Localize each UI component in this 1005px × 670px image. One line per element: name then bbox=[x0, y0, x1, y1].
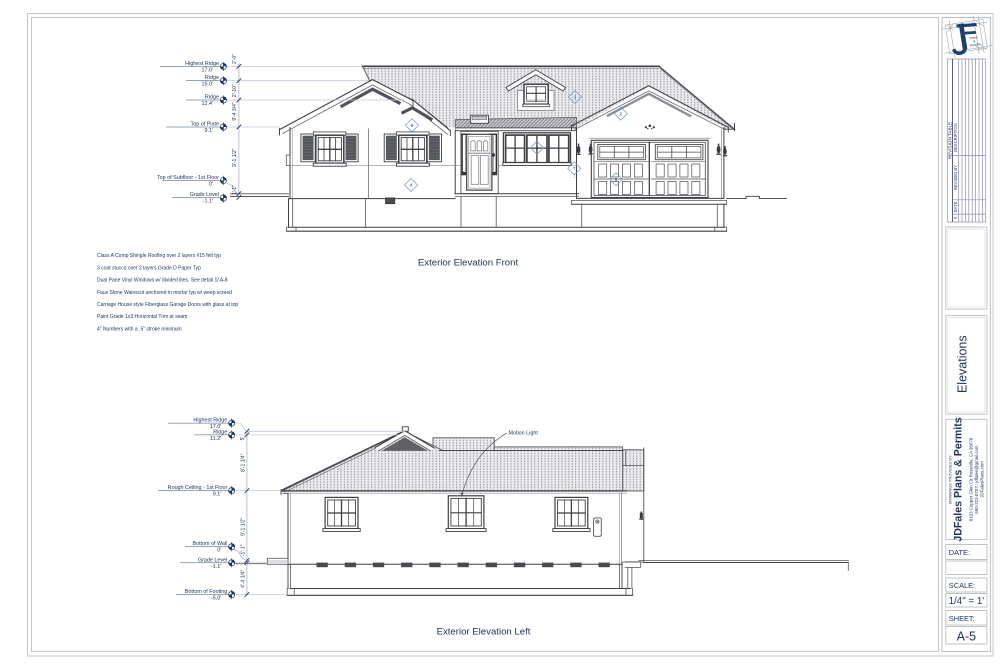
svg-text:Ridge: Ridge bbox=[213, 429, 227, 435]
svg-text:5': 5' bbox=[240, 437, 246, 441]
svg-text:9.1': 9.1' bbox=[204, 128, 213, 134]
svg-text:DATE:: DATE: bbox=[949, 548, 970, 557]
svg-text:Paint Grade 1x3 Horizontal Tri: Paint Grade 1x3 Horizontal Trim at seam. bbox=[97, 314, 189, 320]
svg-text:6: 6 bbox=[411, 123, 414, 128]
svg-text:Class A Comp Shingle Roofing o: Class A Comp Shingle Roofing over 2 laye… bbox=[97, 253, 221, 259]
svg-text:9'-1 1/2": 9'-1 1/2" bbox=[240, 517, 246, 536]
svg-text:650-222-0707 : jdfales@gmail: 650-222-0707 : jdfales@gmail.com bbox=[974, 445, 979, 514]
svg-text:REVISION TABLE: REVISION TABLE bbox=[948, 122, 953, 159]
svg-text:Exterior Elevation Front: Exterior Elevation Front bbox=[418, 258, 519, 269]
svg-text:Carriage House style Fiberglas: Carriage House style Fiberglass Garage D… bbox=[97, 302, 238, 308]
svg-text:11.2': 11.2' bbox=[210, 436, 221, 442]
svg-text:-1.1': -1.1' bbox=[211, 564, 221, 570]
svg-text:7: 7 bbox=[573, 166, 576, 171]
svg-text:-5.0': -5.0' bbox=[211, 596, 221, 602]
svg-text:9.1': 9.1' bbox=[213, 492, 222, 498]
svg-text:-1.1': -1.1' bbox=[203, 199, 213, 205]
svg-text:8'-1 1/4": 8'-1 1/4" bbox=[240, 453, 246, 472]
svg-text:SHEET:: SHEET: bbox=[949, 614, 975, 623]
svg-text:DESCRIPTION: DESCRIPTION bbox=[953, 123, 958, 152]
svg-text:Grade Level: Grade Level bbox=[198, 557, 227, 563]
svg-text:A-5: A-5 bbox=[957, 630, 977, 644]
svg-text:-1'-1": -1'-1" bbox=[240, 544, 246, 556]
svg-text:Rough Ceiling - 1st Floor: Rough Ceiling - 1st Floor bbox=[168, 485, 228, 491]
svg-text:Bottom of Wall: Bottom of Wall bbox=[192, 541, 227, 547]
svg-text:4: 4 bbox=[410, 183, 413, 188]
svg-text:9'-4 3/4": 9'-4 3/4" bbox=[232, 102, 238, 121]
svg-text:SCALE:: SCALE: bbox=[949, 581, 975, 590]
svg-text:JDFales Plans & Permits: JDFales Plans & Permits bbox=[952, 417, 964, 541]
svg-text:2'-10": 2'-10" bbox=[232, 84, 238, 97]
svg-text:12.4': 12.4' bbox=[201, 101, 213, 107]
svg-text:1/4" = 1': 1/4" = 1' bbox=[949, 596, 985, 607]
svg-text:1: 1 bbox=[574, 95, 577, 100]
svg-text:REVISED BY: REVISED BY bbox=[953, 165, 958, 190]
svg-text:Faux Stone Wainscot anchored i: Faux Stone Wainscot anchored in mortar t… bbox=[97, 290, 232, 296]
svg-text:9'-1 1/2": 9'-1 1/2" bbox=[232, 148, 238, 167]
svg-text:Motion Light: Motion Light bbox=[509, 431, 539, 437]
svg-text:0': 0' bbox=[217, 548, 221, 554]
svg-text:1'-1": 1'-1" bbox=[232, 185, 238, 195]
svg-text:4'-4 1/4": 4'-4 1/4" bbox=[240, 569, 246, 588]
svg-text:4" Numbers with a .5" stroke m: 4" Numbers with a .5" stroke minimum bbox=[97, 326, 182, 332]
svg-text:Dual Pane Vinyl Windows w/ div: Dual Pane Vinyl Windows w/ divided lites… bbox=[97, 278, 228, 284]
svg-text:Elevations: Elevations bbox=[956, 335, 970, 393]
svg-text:2'-0": 2'-0" bbox=[232, 54, 238, 64]
svg-text:5: 5 bbox=[615, 177, 618, 182]
svg-text:Bottom of Footing: Bottom of Footing bbox=[185, 589, 228, 595]
svg-text:3 coat stucco over 2 layers Gr: 3 coat stucco over 2 layers Grade D Pape… bbox=[97, 265, 201, 271]
svg-text:Ridge: Ridge bbox=[205, 95, 219, 101]
svg-text:JDFalesPlans.com: JDFalesPlans.com bbox=[979, 461, 984, 498]
svg-text:Highest Ridge: Highest Ridge bbox=[193, 418, 227, 424]
svg-text:Highest Ridge: Highest Ridge bbox=[185, 61, 219, 67]
svg-text:3: 3 bbox=[536, 146, 539, 151]
svg-text:Exterior Elevation Left: Exterior Elevation Left bbox=[437, 627, 531, 638]
svg-text:15.0': 15.0' bbox=[201, 82, 213, 88]
svg-text:0': 0' bbox=[209, 181, 213, 187]
svg-text:Grade Level: Grade Level bbox=[190, 192, 219, 198]
svg-text:2: 2 bbox=[620, 111, 623, 116]
svg-text:DATE: DATE bbox=[953, 201, 958, 212]
svg-text:17.0': 17.0' bbox=[201, 67, 213, 73]
svg-text:Top of Subfloor - 1st Floor: Top of Subfloor - 1st Floor bbox=[157, 175, 219, 181]
svg-text:Ridge: Ridge bbox=[205, 75, 219, 81]
svg-text:Top of Plate: Top of Plate bbox=[191, 122, 219, 128]
svg-text:8103 Copper Glen Cir Roseville: 8103 Copper Glen Cir Roseville, CA 95678 bbox=[968, 437, 973, 521]
